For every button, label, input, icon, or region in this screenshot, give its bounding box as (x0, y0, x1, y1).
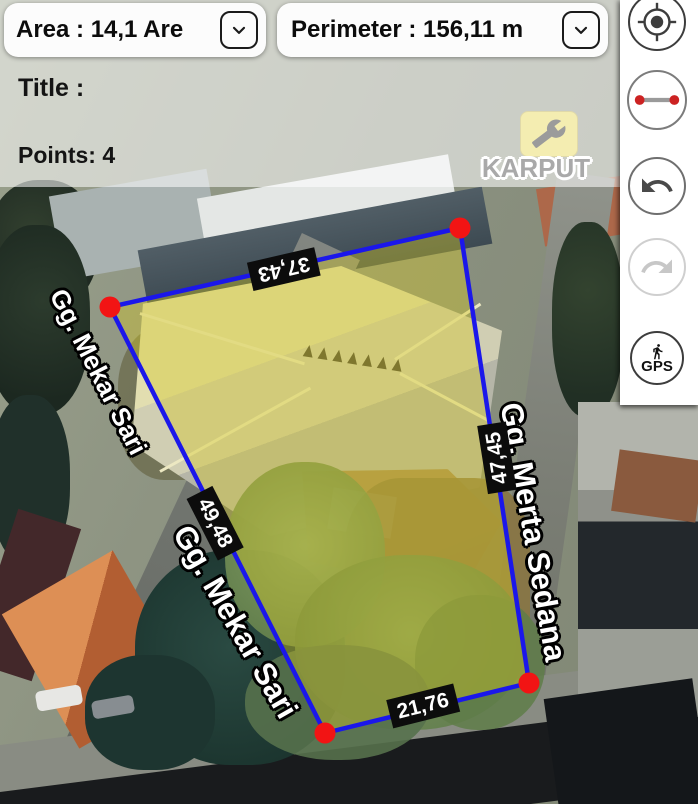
area-value: Area : 14,1 Are (16, 16, 220, 44)
measure-distance-button[interactable] (627, 70, 687, 130)
gps-button[interactable]: GPS (630, 331, 684, 385)
gps-walk-icon (649, 343, 666, 360)
polygon-vertex[interactable] (100, 297, 121, 318)
chevron-down-icon (229, 20, 249, 40)
points-count-label: Points: 4 (18, 142, 115, 169)
redo-icon (639, 249, 675, 285)
perimeter-value: Perimeter : 156,11 m (291, 16, 562, 44)
my-location-button[interactable] (628, 0, 686, 51)
polygon-vertex[interactable] (315, 723, 336, 744)
app-screen: Gg. Mekar Sari Gg. Mekar Sari Gg. Merta … (0, 0, 698, 804)
title-label: Title : (18, 74, 84, 103)
undo-icon (639, 168, 675, 204)
redo-button[interactable] (628, 238, 686, 296)
perimeter-chip: Perimeter : 156,11 m (277, 3, 608, 57)
area-unit-dropdown-button[interactable] (220, 11, 258, 49)
polygon-vertex[interactable] (519, 673, 540, 694)
area-chip: Area : 14,1 Are (4, 3, 266, 57)
chevron-down-icon (571, 20, 591, 40)
gps-button-label: GPS (641, 359, 673, 374)
measure-distance-icon (631, 74, 683, 126)
undo-button[interactable] (628, 157, 686, 215)
polygon-area[interactable] (110, 228, 529, 733)
perimeter-unit-dropdown-button[interactable] (562, 11, 600, 49)
my-location-icon (634, 0, 680, 45)
polygon-vertex[interactable] (450, 218, 471, 239)
